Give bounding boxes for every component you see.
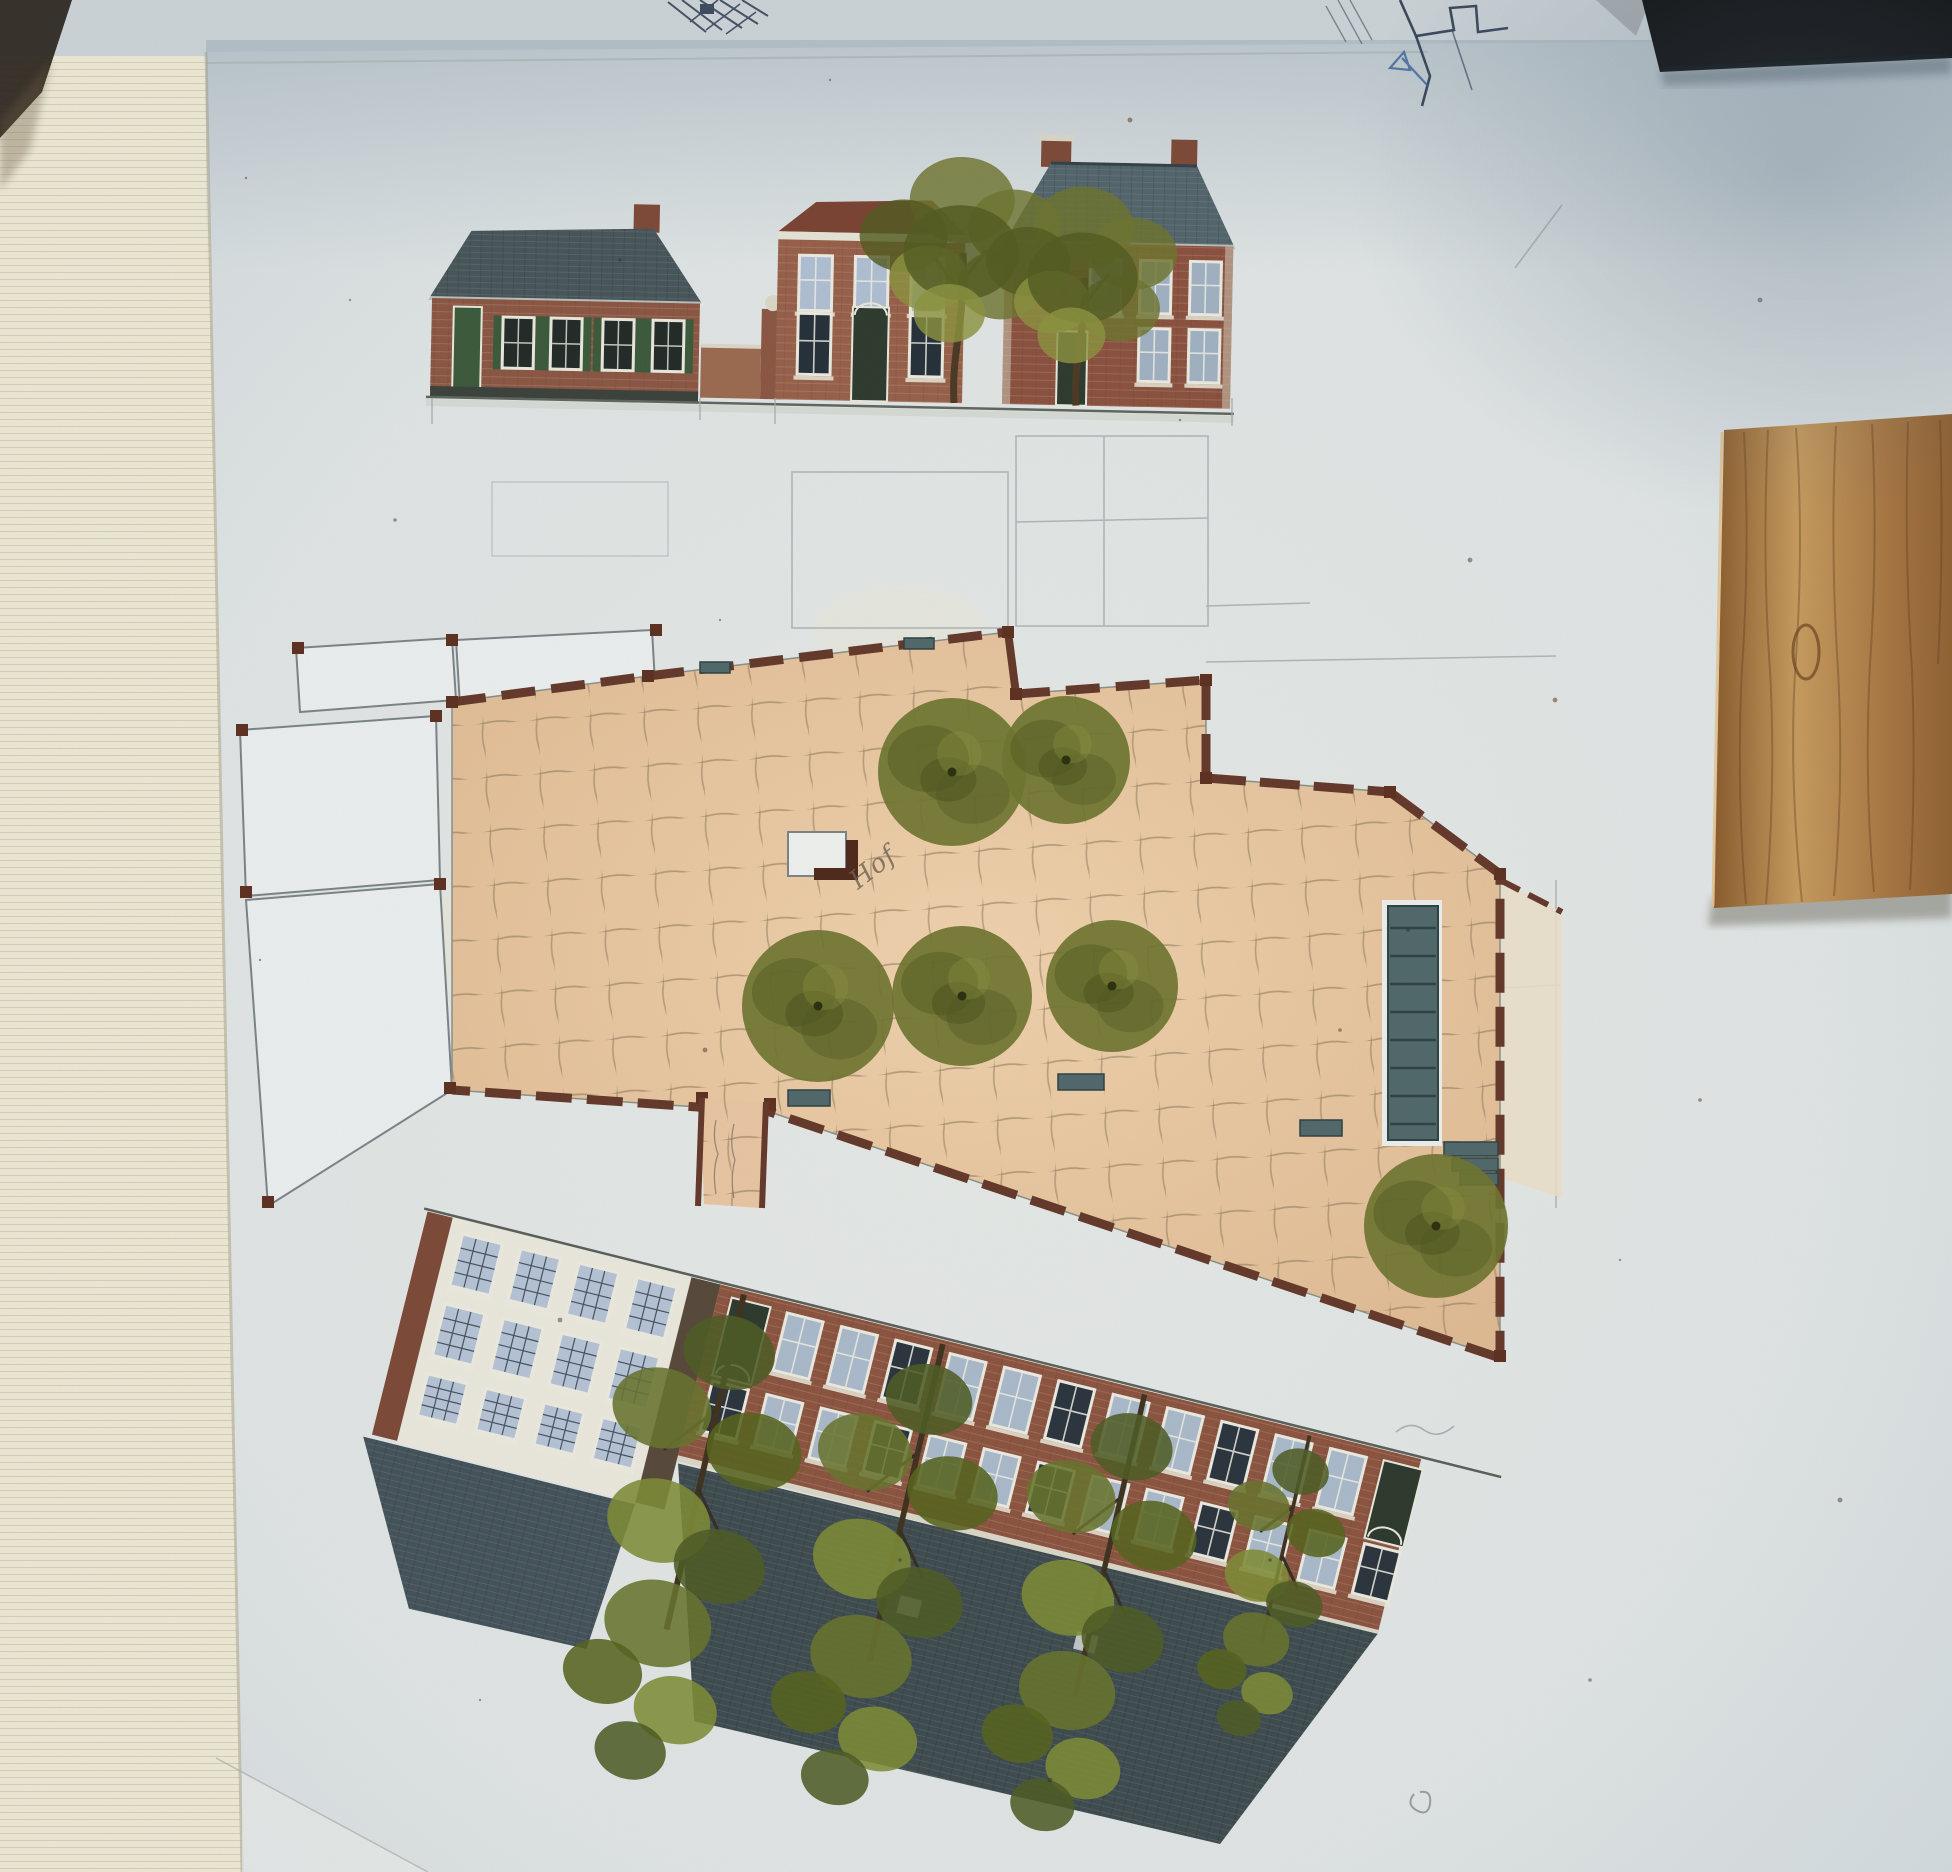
plan-tree [1046,920,1178,1052]
mansion-chimney [1171,139,1198,168]
cottage-window [593,317,644,372]
window [793,312,834,381]
shutter-right [685,319,694,373]
dust-speck [259,959,261,961]
shutter-left [541,316,550,370]
plan-room [296,638,456,712]
cottage-chimney [633,204,660,233]
tree-highlight [948,958,990,1000]
cottage-window [643,318,694,373]
dust-speck [349,299,351,301]
dust-speck [1128,118,1133,123]
dust-speck [1553,698,1558,703]
dust-speck [1179,419,1181,421]
dust-speck [1698,1098,1702,1102]
gate-passage [698,1098,766,1208]
tree-highlight [1099,950,1139,990]
tree-highlight [803,964,849,1010]
dust-speck [1758,298,1763,303]
cottage-window [493,315,544,370]
dust-speck [898,1558,902,1562]
window-sill [793,376,833,381]
dust-speck [703,1048,708,1053]
plan-tree [1002,696,1130,824]
shutter-left [643,318,652,372]
dust-speck [479,1699,481,1701]
window-sill [905,378,945,383]
tree-trunk-dot [948,768,957,777]
photo-of-architectural-drawing: Hof [0,0,1952,1872]
cottage-window [541,316,592,371]
window [795,254,836,317]
dust-speck [1838,1498,1843,1503]
shutter-left [593,317,602,371]
dust-speck [1048,1778,1053,1783]
dust-speck [719,619,721,621]
dust-speck [1268,1558,1272,1562]
window-sill [1184,384,1222,389]
plan-room [240,716,440,896]
cottage-door [452,306,482,389]
dust-speck [558,1318,563,1323]
mansion-chimney-cap [1038,135,1074,142]
tree-trunk-dot [1062,756,1071,765]
dust-speck [1468,558,1473,563]
tree-highlight [1422,1186,1465,1229]
dust-speck [245,177,247,179]
plan-tree [742,930,894,1082]
shutter-right [583,317,592,371]
tree-trunk-dot [814,1002,823,1011]
dust-speck [1338,1028,1342,1032]
plan-tree [1364,1154,1508,1298]
tree-highlight [937,731,981,775]
dust-speck [1619,1259,1621,1261]
tree-trunk-dot [1432,1222,1441,1231]
tree-trunk-dot [1108,982,1117,991]
shutter-left [493,315,502,369]
window-sill [1186,316,1224,321]
stair-block [1388,906,1438,1140]
dust-speck [1406,928,1410,932]
dust-speck [393,518,397,522]
plan-side-rooms [1500,880,1562,1198]
tree-trunk-dot [958,992,967,1001]
window [1186,260,1225,321]
dust-speck [1588,1678,1592,1682]
dust-speck [618,258,622,262]
dust-speck [829,79,831,81]
window-sill [1134,383,1172,388]
tree-highlight [1053,725,1091,763]
garden-wall [700,346,761,399]
window [1184,328,1223,389]
shutter-right [635,318,644,372]
house-door [851,307,889,402]
plan-tree [892,926,1032,1066]
